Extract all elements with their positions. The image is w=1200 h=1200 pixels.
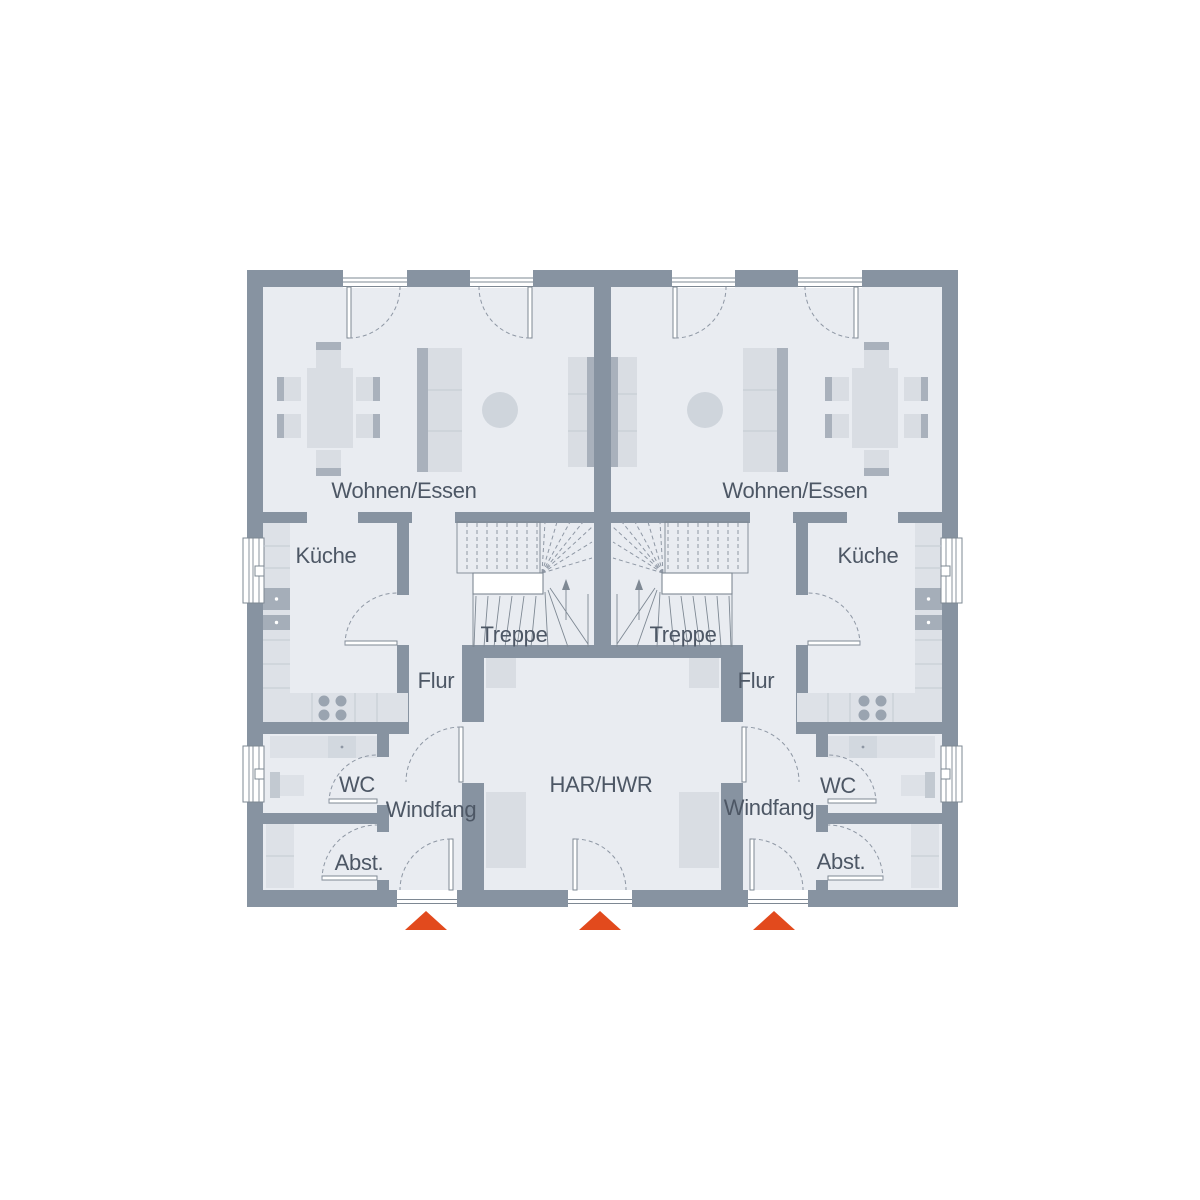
wall-utility-left bbox=[462, 645, 484, 722]
room-label-windfang: Windfang bbox=[386, 799, 477, 821]
wall-partition bbox=[797, 722, 942, 734]
kitchen-sink bbox=[915, 588, 942, 610]
room-label-flur: Flur bbox=[738, 670, 775, 692]
kitchen-counter bbox=[290, 693, 408, 722]
chair bbox=[904, 377, 928, 401]
room-label-wohnen-essen: Wohnen/Essen bbox=[722, 480, 867, 502]
floor-plan: Wohnen/Essen Küche Treppe Flur WC Windfa… bbox=[0, 0, 1200, 1200]
wc-sink bbox=[328, 736, 356, 758]
dining-table bbox=[852, 368, 898, 448]
sofa bbox=[743, 348, 788, 472]
wall-partition bbox=[377, 734, 389, 757]
wall-partition bbox=[455, 512, 594, 523]
wall-partition bbox=[377, 880, 389, 890]
toilet bbox=[901, 775, 925, 796]
wall-partition bbox=[263, 813, 388, 824]
room-label-windfang: Windfang bbox=[724, 797, 815, 819]
chair bbox=[356, 377, 380, 401]
toilet bbox=[270, 772, 280, 798]
wall-partition bbox=[793, 512, 847, 523]
room-label-kueche: Küche bbox=[296, 545, 357, 567]
wall-party bbox=[594, 287, 611, 658]
sideboard bbox=[611, 357, 637, 467]
wall-partition bbox=[817, 813, 942, 824]
wc-sink bbox=[849, 736, 877, 758]
room-label-abstellraum: Abst. bbox=[335, 852, 384, 874]
chair bbox=[277, 377, 301, 401]
wall-partition bbox=[796, 523, 808, 595]
utility-cabinet bbox=[689, 658, 719, 688]
chair bbox=[356, 414, 380, 438]
wall-partition bbox=[358, 512, 412, 523]
wc-counter bbox=[270, 736, 377, 758]
kitchen-appliance bbox=[263, 615, 290, 630]
wall-exterior-bottom bbox=[247, 890, 958, 907]
wall-partition bbox=[397, 523, 409, 595]
wall-partition bbox=[816, 880, 828, 890]
room-label-treppe: Treppe bbox=[480, 624, 547, 646]
chair bbox=[904, 414, 928, 438]
chair bbox=[316, 450, 341, 476]
kitchen-appliance bbox=[915, 615, 942, 630]
chair bbox=[277, 414, 301, 438]
dining-table bbox=[307, 368, 353, 448]
room-label-abstellraum: Abst. bbox=[817, 851, 866, 873]
utility-appliance bbox=[486, 792, 526, 868]
toilet bbox=[280, 775, 304, 796]
wall-exterior-right bbox=[942, 270, 958, 907]
sofa bbox=[417, 348, 462, 472]
chair bbox=[864, 342, 889, 368]
room-label-wc: WC bbox=[339, 774, 375, 796]
wall-partition bbox=[898, 512, 942, 523]
storage-shelf bbox=[911, 824, 939, 888]
kitchen-sink bbox=[263, 588, 290, 610]
wall-partition bbox=[816, 805, 828, 832]
chair bbox=[825, 377, 849, 401]
wall-partition bbox=[263, 512, 307, 523]
wall-partition bbox=[611, 512, 750, 523]
wc-counter bbox=[828, 736, 935, 758]
room-label-wc: WC bbox=[820, 775, 856, 797]
wall-exterior-top bbox=[247, 270, 958, 287]
utility-cabinet bbox=[486, 658, 516, 688]
wall-exterior-left bbox=[247, 270, 263, 907]
sideboard bbox=[568, 357, 594, 467]
room-label-wohnen-essen: Wohnen/Essen bbox=[331, 480, 476, 502]
round-rug bbox=[482, 392, 518, 428]
utility-appliance bbox=[679, 792, 719, 868]
room-label-treppe: Treppe bbox=[649, 624, 716, 646]
chair bbox=[825, 414, 849, 438]
toilet bbox=[925, 772, 935, 798]
chair bbox=[864, 450, 889, 476]
room-label-kueche: Küche bbox=[838, 545, 899, 567]
room-label-flur: Flur bbox=[418, 670, 455, 692]
wall-partition bbox=[816, 734, 828, 757]
room-label-har-hwr: HAR/HWR bbox=[549, 774, 652, 796]
round-rug bbox=[687, 392, 723, 428]
kitchen-counter bbox=[797, 693, 915, 722]
wall-partition bbox=[263, 722, 408, 734]
storage-shelf bbox=[266, 824, 294, 888]
chair bbox=[316, 342, 341, 368]
entrance-arrow bbox=[405, 911, 795, 930]
